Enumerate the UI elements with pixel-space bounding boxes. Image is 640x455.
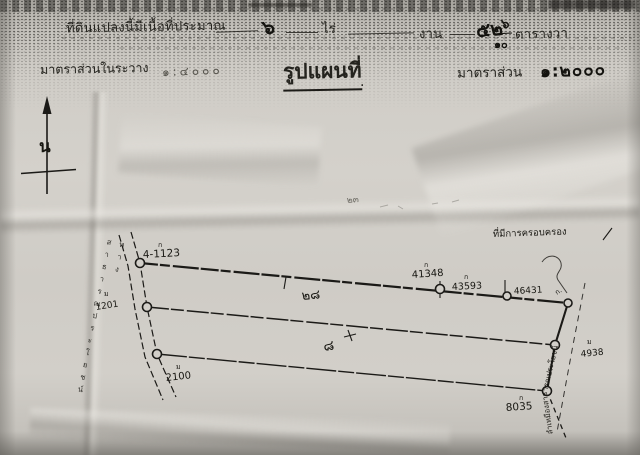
upper-parcel-number: ๒๘ bbox=[301, 287, 321, 304]
post-number: 8035 bbox=[505, 400, 533, 414]
compass-north-letter: น bbox=[39, 137, 51, 157]
pencil-note: ๒๓ bbox=[346, 195, 359, 206]
post-number: 43593 bbox=[452, 280, 483, 293]
post-mark: ม bbox=[587, 338, 592, 346]
scanned-land-survey-document: ที่ดินแปลงนี้มีเนื้อที่ประมาณ ๖ ไร่ งาน … bbox=[0, 0, 640, 455]
pencil-smudges bbox=[380, 200, 459, 209]
post-number: 2100 bbox=[165, 370, 191, 384]
pen-squiggle bbox=[542, 256, 567, 293]
post-number: 4-1123 bbox=[143, 247, 181, 261]
post-mark: ก bbox=[519, 394, 523, 402]
post-number: 41348 bbox=[411, 268, 444, 281]
post-mark: ก. bbox=[554, 286, 564, 296]
post-number: 4938 bbox=[580, 348, 604, 360]
post-mark: ม bbox=[176, 363, 181, 371]
post-mark: ม bbox=[104, 290, 109, 298]
survey-plot-drawing: 4-1123 ก 41348 ก 43593 ก 46431 ก. 1201 ม… bbox=[0, 0, 640, 455]
post-mark: ก bbox=[158, 241, 162, 249]
post-number: 1201 bbox=[95, 300, 119, 313]
post-mark: ก bbox=[424, 261, 428, 269]
lower-parcel-number: ๘ bbox=[322, 338, 335, 355]
post-number: 46431 bbox=[514, 286, 543, 297]
post-mark: ก bbox=[464, 273, 468, 281]
possession-note: ที่มีการครอบครอง bbox=[493, 224, 567, 240]
